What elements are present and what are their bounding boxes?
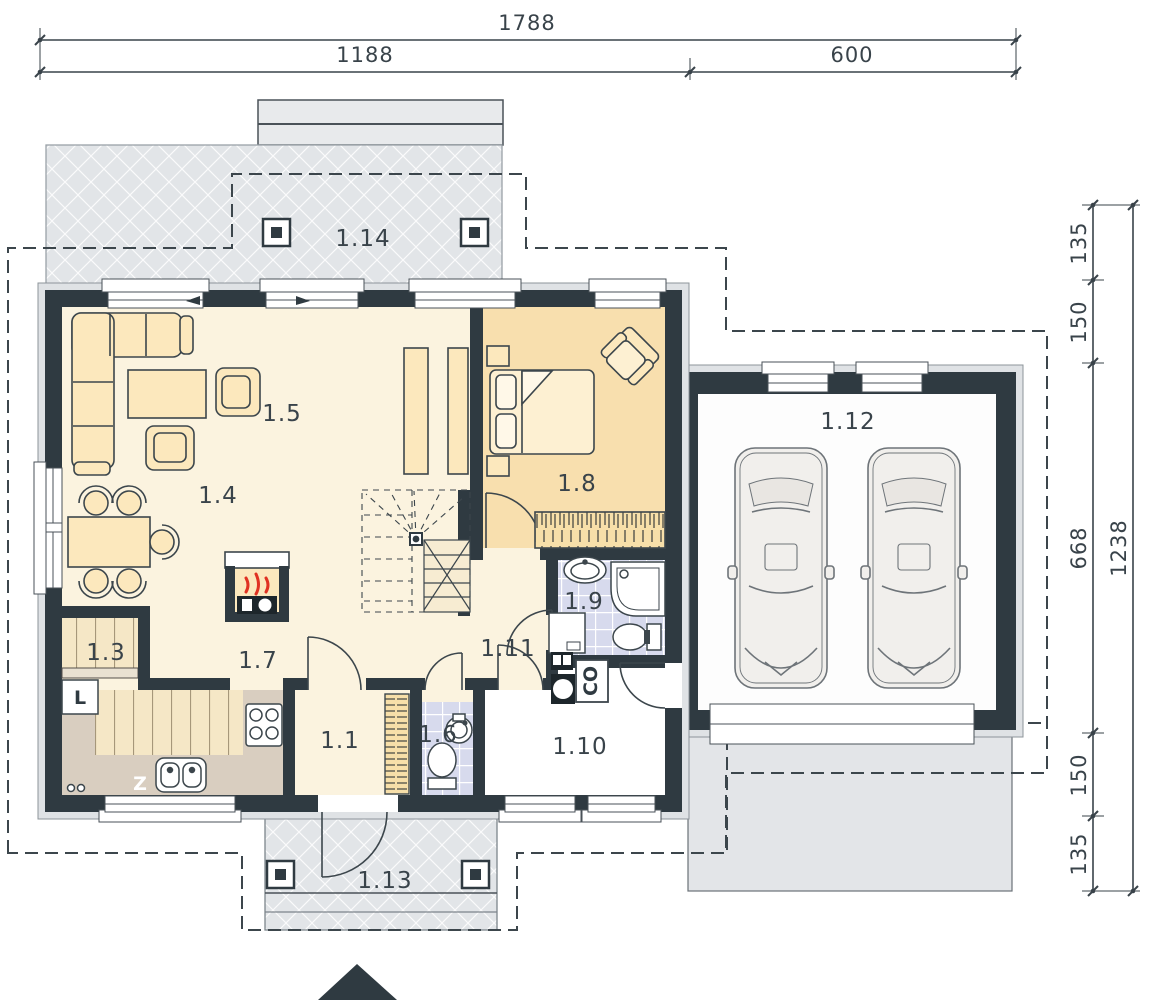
room-label-hall-fireplace: 1.7 [238,648,278,674]
wardrobe [535,512,665,548]
dim-h3: 668 [1067,526,1091,569]
sink-label: Z [133,773,147,795]
kitchen-sink [156,758,206,792]
column-marker [461,219,488,246]
room-label-entry: 1.1 [320,728,360,754]
room-label-dining: 1.4 [198,483,238,509]
room-label-pantry: 1.3 [86,640,126,666]
fireplace [225,552,289,622]
floor-plan-drawing: 1788 1188 600 135 150 668 150 135 1238 1… [0,0,1149,1000]
kitchen-floor [95,690,243,755]
north-arrow-icon [318,964,397,1000]
dim-width-right: 600 [830,43,873,67]
toilet [613,624,661,650]
armchair [216,368,260,416]
cooktop [246,704,282,746]
dim-height-total: 1238 [1107,519,1131,576]
pantry-shelf [62,668,138,678]
room-label-wc: 1.6 [418,722,458,748]
nightstand [487,346,509,366]
room-label-corridor: 1.11 [480,636,535,662]
room-label-bedroom: 1.8 [557,471,597,497]
room-label-bathroom: 1.9 [564,589,604,615]
dining-table [68,517,150,567]
washbasin [564,557,606,583]
coffee-table [128,370,206,418]
driveway [688,733,1012,891]
fridge-label: L [74,687,86,709]
terrace-upper [46,145,502,290]
car [728,448,834,688]
room-label-utility: 1.10 [552,734,607,760]
room-label-porch: 1.13 [357,868,412,894]
dim-h5: 135 [1067,832,1091,875]
chimney-block [258,100,503,145]
column-marker [263,219,290,246]
toilet [428,743,456,789]
dim-h2: 150 [1067,300,1091,343]
dim-h4: 150 [1067,753,1091,796]
floor-plan-page: 1788 1188 600 135 150 668 150 135 1238 1… [0,0,1149,1000]
hall-wardrobe [385,694,409,794]
dim-width-left: 1188 [336,43,393,67]
room-label-terrace: 1.14 [335,226,390,252]
double-bed [490,370,594,454]
dim-width-total: 1788 [498,11,555,35]
car [861,448,967,688]
column-marker [267,861,294,888]
dresser [448,348,468,474]
boiler-label: CO [580,666,602,696]
nightstand [487,456,509,476]
dim-h1: 135 [1067,221,1091,264]
room-label-living: 1.5 [262,401,302,427]
sideboard [404,348,428,474]
column-marker [462,861,489,888]
room-label-garage: 1.12 [820,409,875,435]
armchair [146,426,194,470]
shower [611,562,665,616]
